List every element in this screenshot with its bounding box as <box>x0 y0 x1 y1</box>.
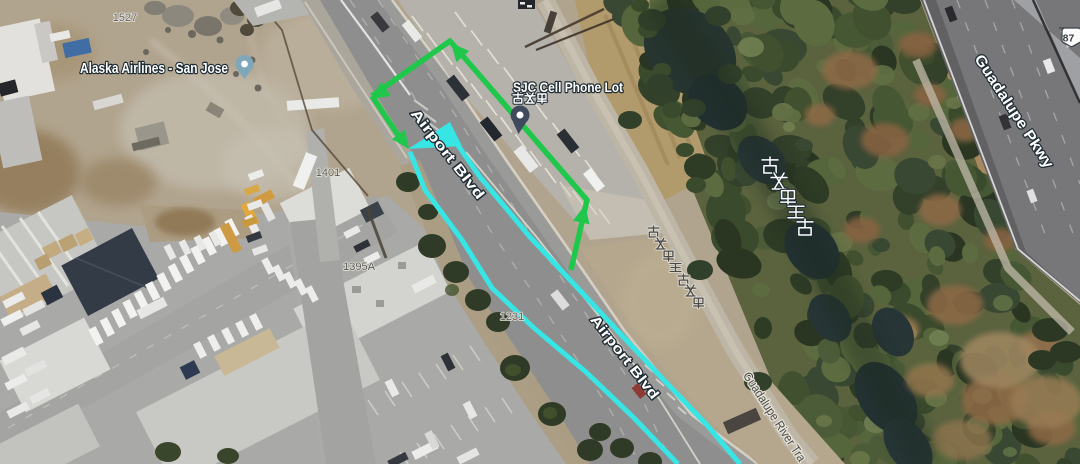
svg-text:SJC Cell Phone Lot: SJC Cell Phone Lot <box>513 79 623 95</box>
svg-text:1401: 1401 <box>316 167 340 179</box>
svg-text:87: 87 <box>1063 33 1075 45</box>
svg-text:1395A: 1395A <box>343 261 375 273</box>
svg-text:1231: 1231 <box>500 311 524 323</box>
svg-text:Alaska Airlines - San Jose: Alaska Airlines - San Jose <box>80 61 228 77</box>
svg-text:1527: 1527 <box>113 12 137 24</box>
